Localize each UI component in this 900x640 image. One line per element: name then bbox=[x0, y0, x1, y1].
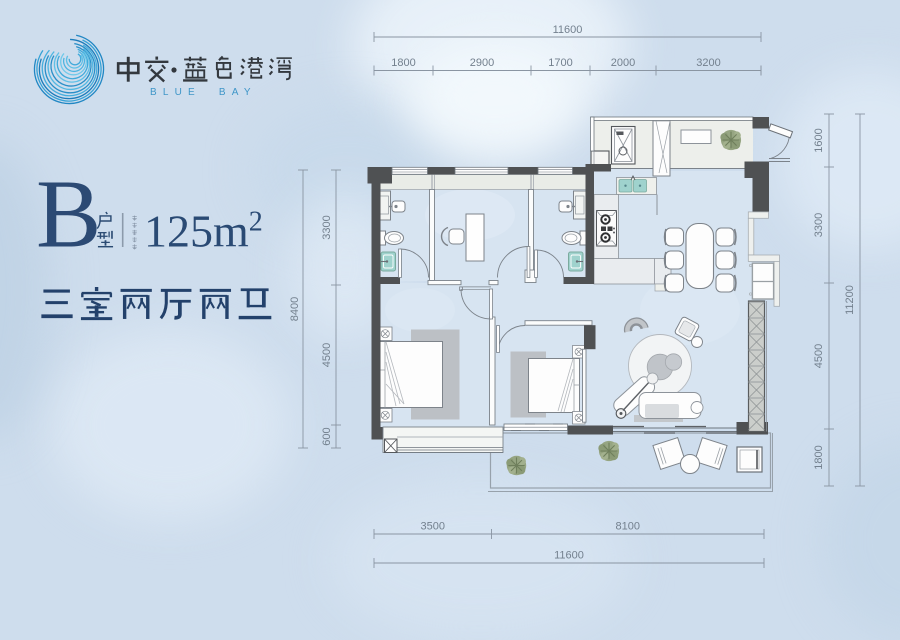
svg-text:125m2: 125m2 bbox=[144, 206, 263, 257]
svg-text:B: B bbox=[36, 161, 101, 269]
svg-text:BLUE BAY: BLUE BAY bbox=[150, 87, 257, 98]
